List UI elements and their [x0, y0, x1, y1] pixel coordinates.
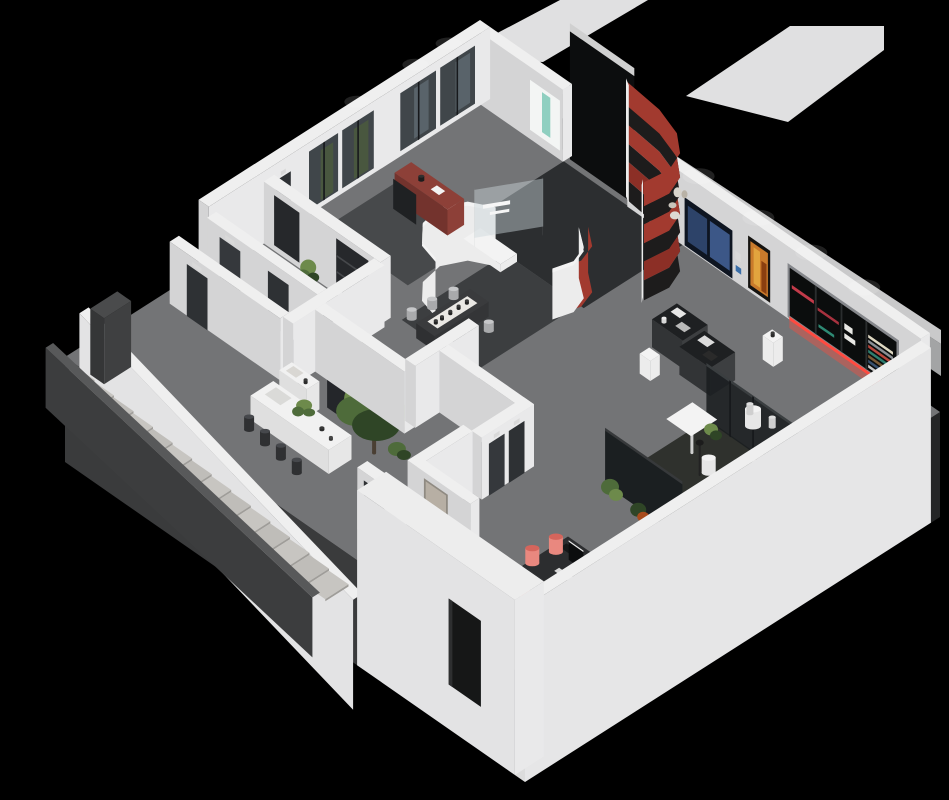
bar-stool-top	[292, 458, 302, 463]
board-divider-2	[841, 303, 843, 352]
pedestal-object-base	[771, 334, 775, 337]
sample-room-door	[509, 421, 525, 483]
tea-stool-top	[484, 319, 494, 324]
island-plant	[292, 407, 304, 417]
sample-room-door	[489, 434, 505, 496]
shelf-objects	[670, 211, 680, 219]
counter-sample-cyl-top	[662, 317, 667, 320]
wall-washer-light	[683, 168, 715, 184]
counter-sample-cyl-base	[662, 321, 667, 324]
tree-trunk-base	[372, 452, 376, 455]
wall-washer-light	[848, 279, 880, 295]
island-bowl-top	[319, 426, 324, 429]
glass-wall-plants	[609, 489, 623, 501]
isometric-floorplan-svg	[0, 0, 949, 800]
tea-stool-base	[484, 328, 494, 333]
courtyard-plants	[710, 430, 722, 440]
tea-stool-top	[407, 307, 417, 312]
tea-cup-top	[448, 310, 452, 313]
floorplan-render: 3D isometric cutaway floor plan render o…	[0, 0, 949, 800]
island-bowl-top	[329, 436, 333, 439]
tea-cup-top	[434, 319, 438, 322]
bar-stool-top	[260, 429, 270, 434]
window-3-mullion	[357, 120, 359, 179]
bar-stool-base	[260, 442, 270, 447]
floor-lamp	[699, 445, 701, 475]
canopy-pole-base	[690, 451, 693, 454]
island-plant	[303, 409, 315, 417]
counter-pot-top	[304, 378, 308, 381]
sw-exterior-wall-face	[515, 581, 544, 775]
coral-office-chair-base	[549, 549, 563, 555]
tea-stool-top	[427, 297, 437, 302]
coral-office-chair-top	[525, 545, 539, 551]
tea-stool-base	[427, 306, 437, 311]
wall-washer-light	[402, 59, 428, 71]
stool-top	[746, 402, 753, 405]
bar-stool-base	[292, 471, 302, 476]
shelf-objects	[674, 187, 682, 197]
window-3-greenery	[354, 120, 369, 179]
floor-lamp-head	[696, 440, 704, 446]
sw-doorway-reveal	[449, 599, 453, 688]
sample-room-wall-se-face	[472, 431, 482, 500]
stair-top-wall-face	[90, 309, 104, 385]
center-partition-b-face	[405, 359, 415, 428]
red-display-end-trim	[626, 78, 629, 203]
stool-base	[769, 426, 776, 429]
tea-cup-top	[465, 299, 469, 302]
ne-wall-left-face	[563, 84, 572, 162]
tea-cup-top	[457, 305, 461, 308]
coral-office-chair-top	[549, 534, 563, 540]
pedestal-object-top	[771, 331, 775, 334]
tea-stool-base	[407, 316, 417, 321]
wall-washer-light	[742, 210, 774, 226]
tea-stool-top	[449, 287, 459, 292]
artwork-shadow	[761, 261, 766, 295]
window-4-mullion	[323, 142, 325, 201]
artwork-highlight	[754, 247, 760, 287]
stool-base	[746, 412, 753, 415]
shelf-objects	[682, 190, 688, 198]
ceiling-slab-right	[686, 26, 884, 122]
tea-cup-top	[440, 315, 444, 318]
wall-washer-light	[436, 38, 462, 50]
bar-stool-top	[244, 414, 254, 419]
stool-top	[769, 416, 776, 419]
reception-desk-bowl-top	[418, 175, 424, 178]
wall-poster-teal-streak	[542, 92, 550, 138]
round-table-base	[745, 422, 761, 429]
window-4-greenery	[321, 142, 334, 200]
red-display-end-trim	[642, 179, 643, 303]
bar-stool-top	[276, 443, 286, 448]
window-2-reflection	[414, 79, 429, 138]
tea-stool-base	[449, 296, 459, 301]
bar-stool-base	[276, 456, 286, 461]
counter-pot-base	[304, 381, 308, 384]
window-1-mullion	[457, 57, 459, 116]
wall-washer-light	[344, 96, 370, 108]
shelf-objects	[669, 202, 677, 208]
glass-mullion	[729, 380, 731, 437]
window-2-mullion	[418, 81, 420, 140]
board-divider-3	[865, 321, 867, 370]
board-divider-1	[815, 286, 817, 335]
reception-desk-bowl-base	[418, 179, 424, 182]
patio-table-top	[702, 454, 716, 460]
floor-lamp-base	[699, 473, 701, 476]
coral-office-chair-base	[525, 560, 539, 566]
wall-washer-light	[795, 245, 827, 261]
bar-stool-base	[244, 427, 254, 432]
floor-plants	[397, 450, 411, 460]
